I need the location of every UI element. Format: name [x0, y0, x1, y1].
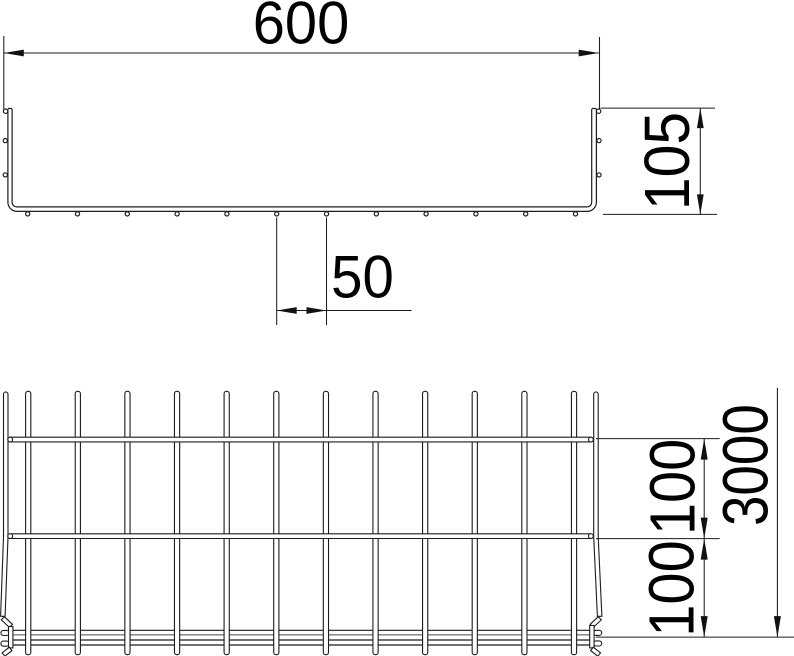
svg-text:100: 100: [636, 540, 707, 637]
svg-text:3000: 3000: [710, 404, 782, 526]
svg-text:600: 600: [253, 0, 349, 57]
svg-text:50: 50: [331, 244, 394, 311]
svg-text:100: 100: [637, 439, 708, 535]
svg-text:105: 105: [632, 112, 704, 210]
